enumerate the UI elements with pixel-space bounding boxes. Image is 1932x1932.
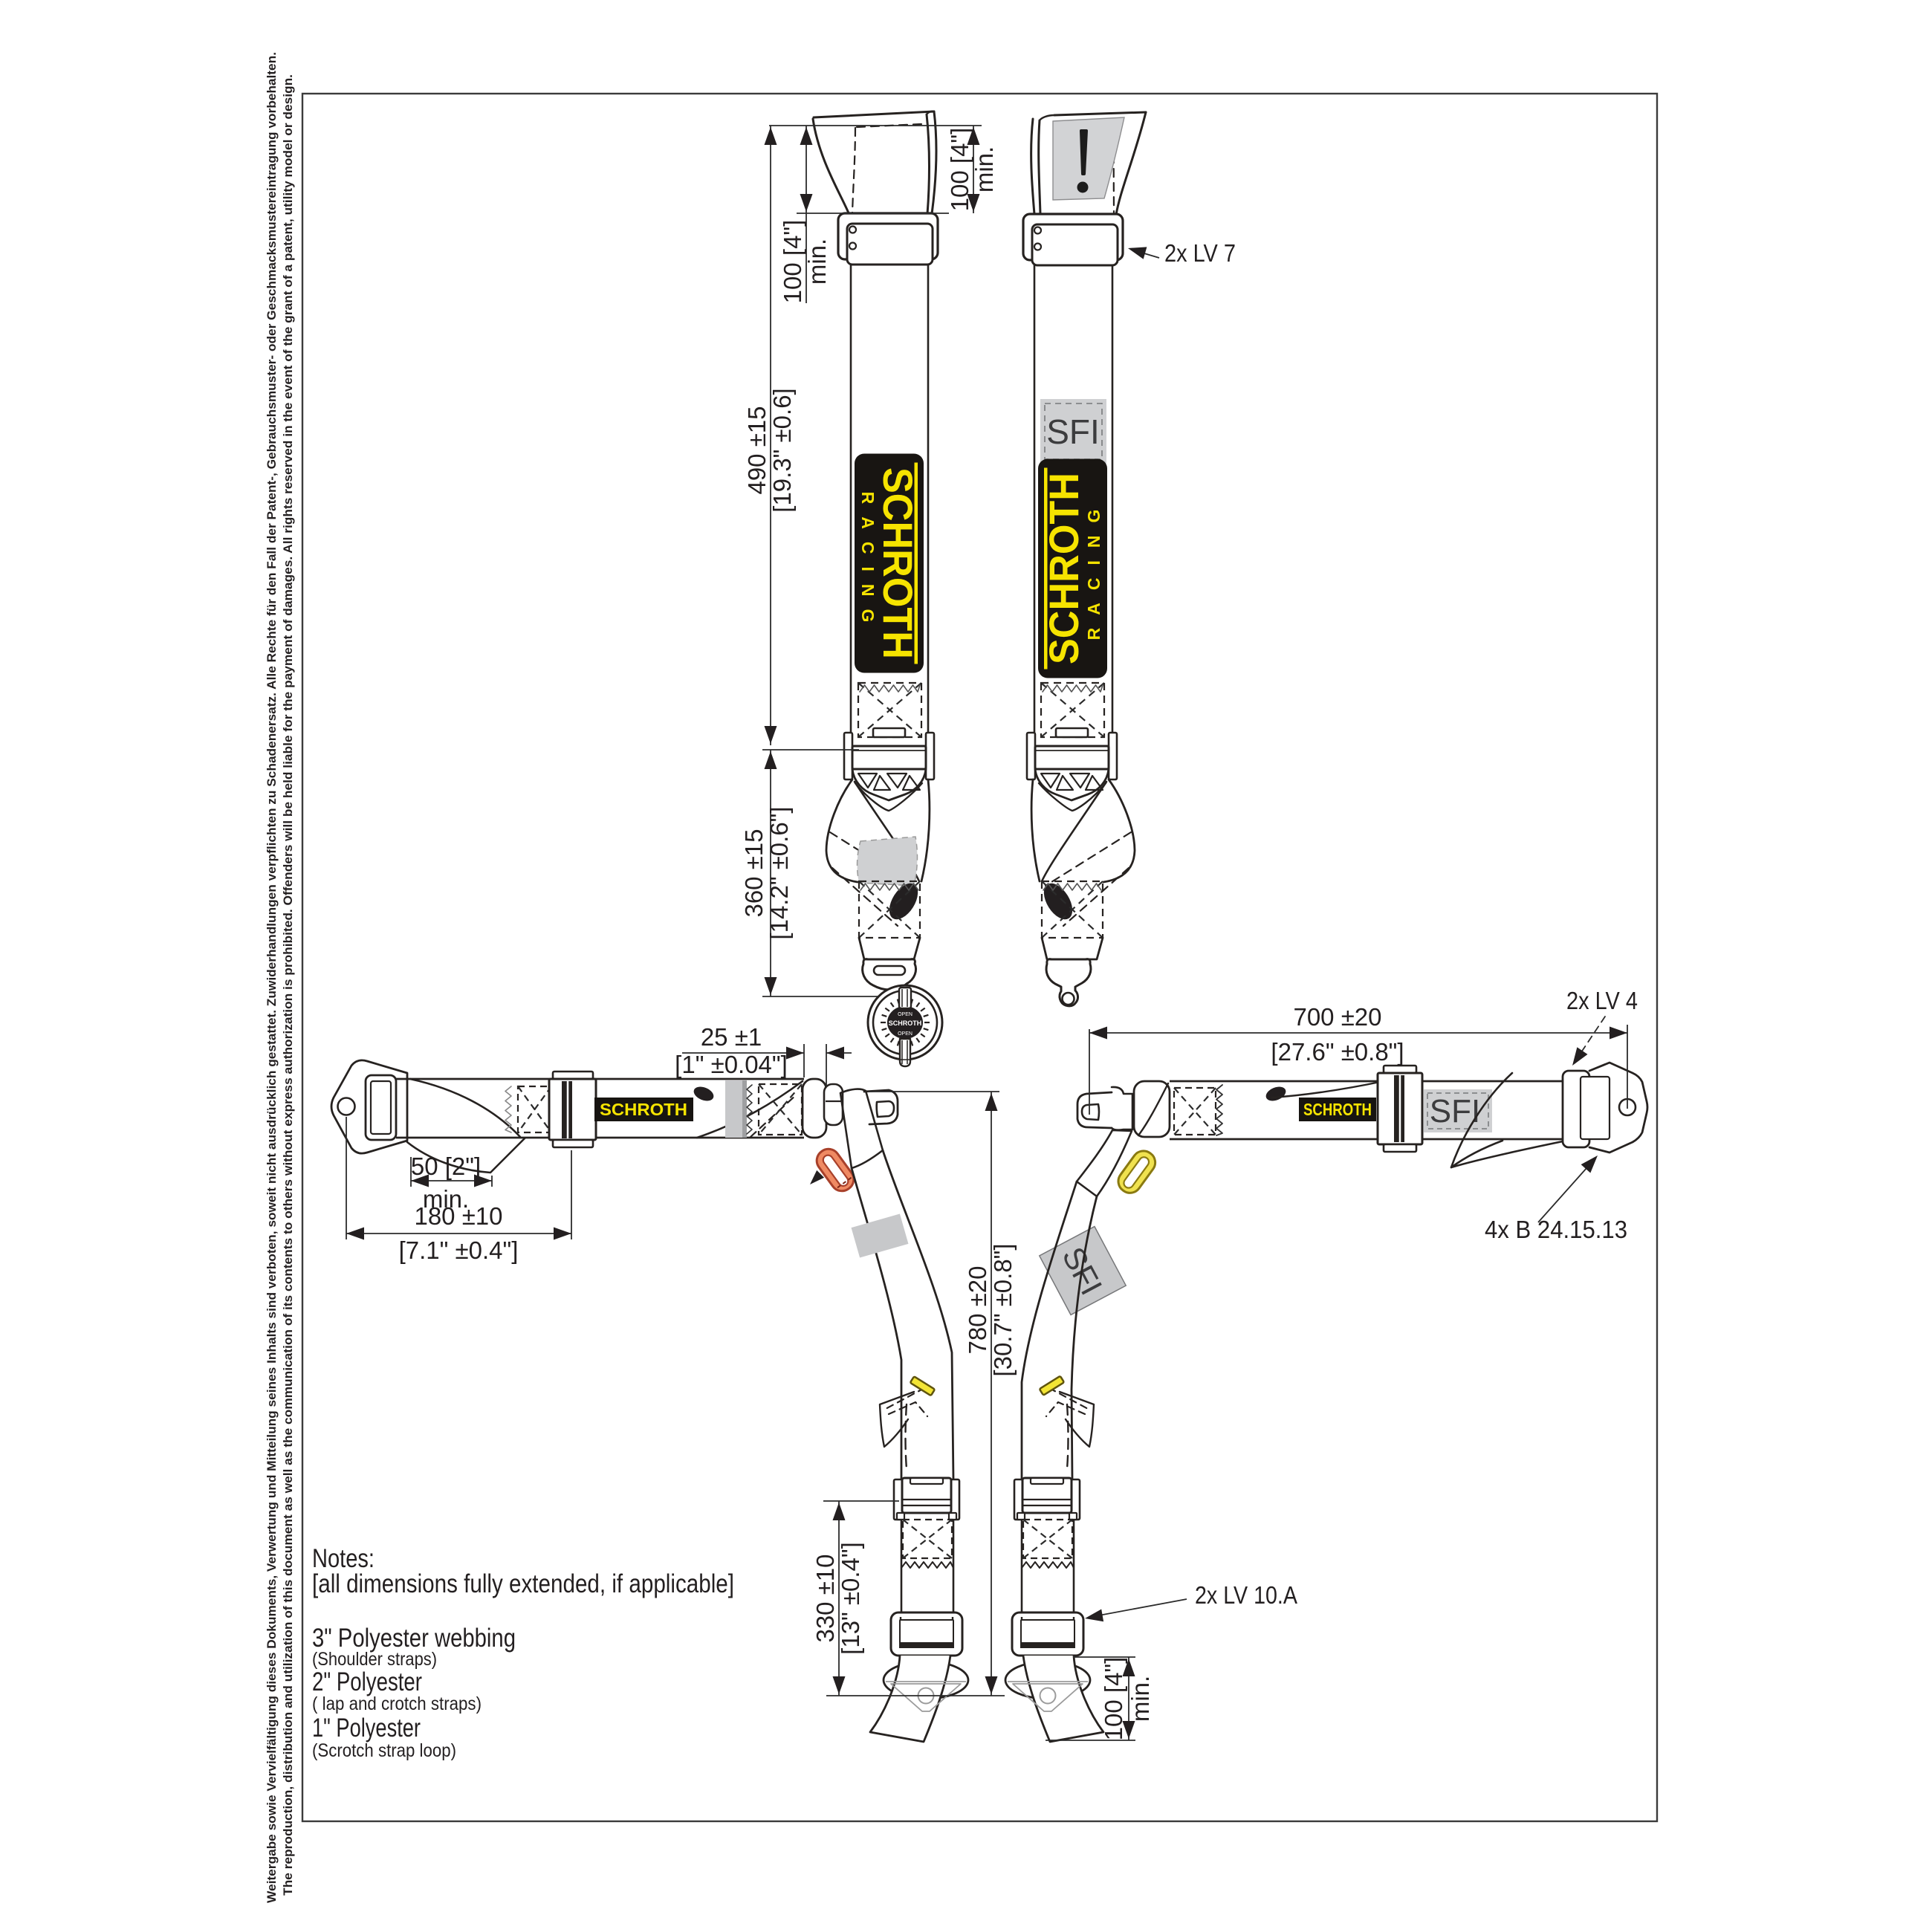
svg-text:min.: min. bbox=[970, 146, 998, 192]
svg-text:(Shoulder straps): (Shoulder straps) bbox=[312, 1649, 437, 1670]
svg-text:[1" ±0.04"]: [1" ±0.04"] bbox=[675, 1051, 788, 1078]
svg-text:(Scrotch strap loop): (Scrotch strap loop) bbox=[312, 1740, 456, 1761]
svg-text:2x LV 4: 2x LV 4 bbox=[1566, 987, 1638, 1014]
svg-text:min.: min. bbox=[1127, 1676, 1154, 1722]
svg-text:[30.7" ±0.8"]: [30.7" ±0.8"] bbox=[989, 1243, 1017, 1376]
svg-text:min.: min. bbox=[803, 239, 831, 285]
svg-text:780 ±20: 780 ±20 bbox=[964, 1265, 991, 1354]
svg-text:OPEN: OPEN bbox=[898, 1031, 912, 1037]
svg-text:OPEN: OPEN bbox=[898, 1012, 912, 1017]
svg-text:[7.1" ±0.4"]: [7.1" ±0.4"] bbox=[399, 1236, 519, 1264]
svg-text:SCHROTH: SCHROTH bbox=[1040, 473, 1087, 664]
svg-text:100 [4"]: 100 [4"] bbox=[946, 128, 973, 212]
svg-text:2x LV 10.A: 2x LV 10.A bbox=[1195, 1581, 1297, 1609]
svg-text:50 [2"]: 50 [2"] bbox=[411, 1153, 481, 1180]
svg-text:SCHROTH: SCHROTH bbox=[875, 467, 921, 659]
svg-text:SCHROTH: SCHROTH bbox=[600, 1100, 687, 1119]
svg-text:[19.3" ±0.6]: [19.3" ±0.6] bbox=[768, 388, 796, 512]
svg-text:360 ±15: 360 ±15 bbox=[740, 829, 768, 917]
svg-text:[all dimensions fully extended: [all dimensions fully extended, if appli… bbox=[312, 1569, 734, 1598]
svg-text:RACING: RACING bbox=[858, 492, 878, 635]
svg-text:490 ±15: 490 ±15 bbox=[743, 406, 771, 494]
svg-text:2x LV 7: 2x LV 7 bbox=[1164, 239, 1236, 267]
svg-text:100 [4"]: 100 [4"] bbox=[1100, 1657, 1127, 1741]
svg-text:4x B 24.15.13: 4x B 24.15.13 bbox=[1485, 1216, 1627, 1243]
svg-text:1" Polyester: 1" Polyester bbox=[312, 1714, 421, 1743]
svg-text:[14.2" ±0.6"]: [14.2" ±0.6"] bbox=[765, 806, 793, 939]
svg-text:The reproduction, distribution: The reproduction, distribution and utili… bbox=[282, 74, 295, 1896]
svg-text:( lap and crotch straps): ( lap and crotch straps) bbox=[312, 1693, 482, 1714]
svg-text:[13" ±0.4"]: [13" ±0.4"] bbox=[837, 1542, 864, 1655]
svg-text:[27.6" ±0.8"]: [27.6" ±0.8"] bbox=[1271, 1038, 1404, 1066]
svg-text:330 ±10: 330 ±10 bbox=[811, 1554, 839, 1642]
svg-text:2" Polyester: 2" Polyester bbox=[312, 1667, 422, 1696]
svg-text:700 ±20: 700 ±20 bbox=[1293, 1003, 1381, 1031]
svg-text:25 ±1: 25 ±1 bbox=[701, 1023, 762, 1051]
svg-text:100 [4"]: 100 [4"] bbox=[779, 220, 806, 304]
svg-text:SFI: SFI bbox=[1046, 412, 1100, 451]
svg-text:Weitergabe sowie Vervielfältig: Weitergabe sowie Vervielfältigung dieses… bbox=[265, 52, 279, 1903]
svg-text:180 ±10: 180 ±10 bbox=[414, 1202, 502, 1230]
svg-text:SCHROTH: SCHROTH bbox=[889, 1020, 922, 1027]
svg-text:RACING: RACING bbox=[1084, 497, 1103, 641]
svg-text:SCHROTH: SCHROTH bbox=[1303, 1100, 1372, 1119]
